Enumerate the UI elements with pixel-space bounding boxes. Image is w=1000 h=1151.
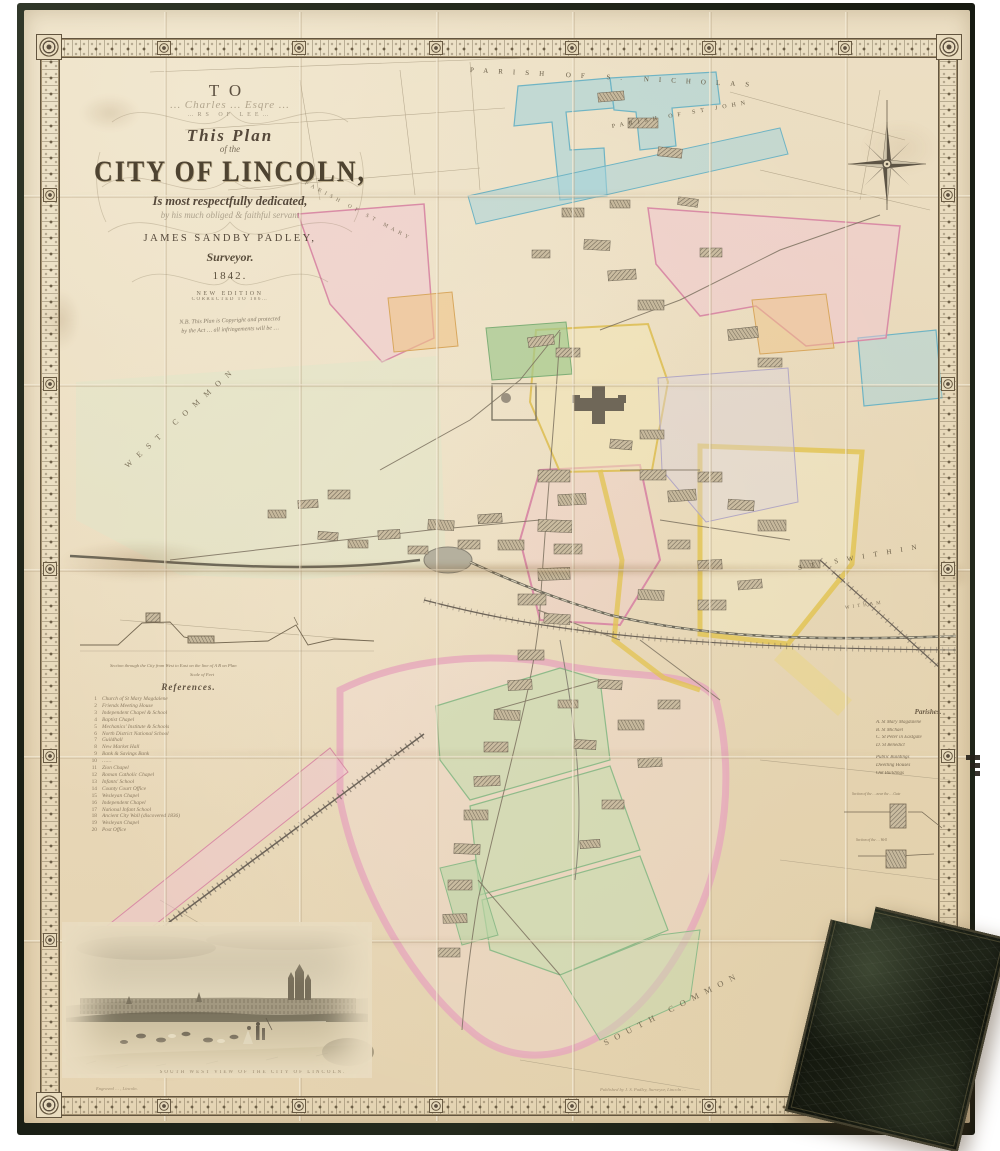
border-corner-rosette [936, 34, 962, 60]
legend-swatch-row: Dwelling Houses [876, 763, 980, 768]
border-knot-rosette [838, 41, 852, 55]
imprint-right: Published by J. S. Padley, Surveyor, Lin… [600, 1087, 686, 1092]
reference-item: 14County Court Office [86, 786, 291, 793]
border-knot-rosette [702, 1099, 716, 1113]
legend-swatch [970, 763, 980, 768]
border-knot-rosette [292, 1099, 306, 1113]
references-title: References. [86, 682, 291, 692]
section-diagram-right [838, 788, 958, 880]
border-knot-rosette [941, 377, 955, 391]
fold-line-horizontal [24, 569, 970, 572]
border-top [40, 38, 958, 58]
reference-item: 3Independent Chapel & School [86, 710, 291, 717]
imprint-left: Engraved … , Lincoln. [96, 1086, 138, 1091]
border-knot-rosette [429, 1099, 443, 1113]
border-corner-rosette [936, 1092, 962, 1118]
parish-item: D. St Benedict [876, 742, 980, 750]
border-corner-rosette [36, 1092, 62, 1118]
reference-item: 2Friends Meeting House [86, 703, 291, 710]
border-knot-rosette [565, 41, 579, 55]
map-title: CITY OF LINCOLN, [92, 156, 368, 187]
reference-item: 4Baptist Chapel [86, 717, 291, 724]
author-name: JAMES SANDBY PADLEY, [92, 233, 368, 244]
border-knot-rosette [838, 1099, 852, 1113]
title-cartouche: TO … Charles … Esqre … …RS OF LEE… This … [92, 82, 368, 335]
border-knot-rosette [565, 1099, 579, 1113]
border-corner-rosette [36, 34, 62, 60]
border-knot-rosette [157, 1099, 171, 1113]
fold-line-vertical [709, 12, 712, 1121]
reference-item: 11Zion Chapel [86, 765, 291, 772]
border-knot-rosette [43, 562, 57, 576]
section-diagram-left [72, 605, 392, 663]
border-knot-rosette [702, 41, 716, 55]
border-knot-rosette [292, 41, 306, 55]
reference-item: 15Wesleyan Chapel [86, 793, 291, 800]
parishes-legend: Parishes. A. St Mary MagdaleneB. St Mich… [876, 708, 980, 776]
reference-item: 20Post Office [86, 827, 291, 834]
reference-item: 9Bank & Savings Bank [86, 751, 291, 758]
border-knot-rosette [941, 188, 955, 202]
vignette-fade [62, 922, 372, 1078]
reference-item: 10…… [86, 758, 291, 765]
section-right-caption-2: Section of the … Well [856, 838, 887, 842]
parishes-title: Parishes. [876, 708, 980, 716]
parish-item: C. St Peter in Eastgate [876, 734, 980, 742]
reference-item: 16Independent Chapel [86, 800, 291, 807]
dedication-to: TO [92, 82, 368, 100]
legend-swatch-row: Public Buildings [876, 755, 980, 760]
legend-swatch [966, 755, 980, 760]
references-legend: References. 1Church of St Mary Magdalene… [86, 682, 291, 834]
border-knot-rosette [43, 933, 57, 947]
vignette-caption: SOUTH WEST VIEW OF THE CITY OF LINCOLN. [128, 1070, 378, 1075]
border-knot-rosette [429, 41, 443, 55]
parish-item: B. St Michael [876, 727, 980, 735]
legend-swatch [975, 771, 980, 776]
this-plan-line: This Plan [92, 127, 368, 145]
reference-item: 7Guildhall [86, 737, 291, 744]
compass-rose-icon [842, 100, 932, 212]
reference-item: 8New Market Hall [86, 744, 291, 751]
edition-correction: CORRECTED TO 186… [92, 297, 368, 302]
fold-line-vertical [436, 12, 439, 1121]
section-left-caption: Section through the City from West to Ea… [110, 663, 237, 668]
reference-item: 13Infants' School [86, 779, 291, 786]
of-the-line: of the [92, 145, 368, 154]
vignette-engraving [66, 926, 368, 1074]
border-knot-rosette [43, 749, 57, 763]
section-right-caption-1: Section of the … near the … Gate [852, 792, 900, 796]
reference-item: 12Roman Catholic Chapel [86, 772, 291, 779]
fold-line-vertical [572, 12, 575, 1121]
fold-line-horizontal [24, 384, 970, 387]
author-role: Surveyor. [92, 251, 368, 264]
servant-line: by his much obliged & faithful servant [92, 211, 368, 220]
border-knot-rosette [941, 562, 955, 576]
border-knot-rosette [43, 377, 57, 391]
reference-item: 5Mechanics' Institute & Schools [86, 724, 291, 731]
reference-item: 6North District National School [86, 731, 291, 738]
section-left-scale: Scale of Feet [190, 672, 214, 677]
dedicatee-name: … Charles … Esqre … [92, 100, 368, 112]
map-year: 1842. [92, 271, 368, 283]
legend-swatch-row: Out Buildings [876, 771, 980, 776]
reference-item: 1Church of St Mary Magdalene [86, 696, 291, 703]
border-knot-rosette [941, 933, 955, 947]
border-knot-rosette [43, 188, 57, 202]
border-bottom [40, 1096, 958, 1116]
border-knot-rosette [157, 41, 171, 55]
parish-item: A. St Mary Magdalene [876, 719, 980, 727]
photograph-of-folding-map: TO … Charles … Esqre … …RS OF LEE… This … [0, 0, 1000, 1151]
dedicatee-style: …RS OF LEE… [92, 112, 368, 118]
reference-item: 18Ancient City Wall (discovered 1836) [86, 813, 291, 820]
